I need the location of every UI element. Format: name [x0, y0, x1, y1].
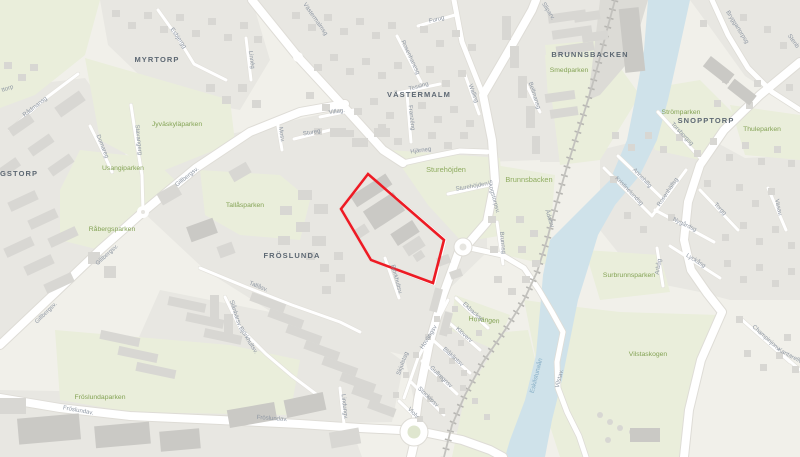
park-label-sturehojden: Sturehöjden: [426, 165, 466, 174]
park-label-jyvaskylaparken: Jyväskyläparken: [152, 121, 202, 128]
park-label-surbrunnsparken: Surbrunnsparken: [603, 272, 655, 279]
district-label-vastermalm: VÄSTERMALM: [387, 90, 451, 99]
district-label-brunnsbacken: BRUNNSBACKEN: [551, 50, 628, 59]
park-label-stromparken: Strömparken: [662, 109, 701, 116]
park-label-brunnsbacken-green: Brunnsbacken: [505, 175, 552, 184]
park-label-froslundaparken: Fröslundaparken: [74, 394, 125, 401]
park-label-tallasparken: Tallåsparken: [226, 201, 264, 209]
district-label-myrtorp: MYRTORP: [134, 55, 179, 64]
map-canvas[interactable]: MYRTORP VÄSTERMALM BRUNNSBACKEN SNOPPTOR…: [0, 0, 800, 457]
park-label-rabergsparken: Råbergsparken: [89, 225, 136, 233]
park-label-smedparken: Smedparken: [550, 67, 589, 74]
park-label-usangiparken: Usangiparken: [102, 165, 144, 172]
park-label-vilstaskogen: Vilstaskogen: [629, 351, 668, 358]
map-svg: MYRTORP VÄSTERMALM BRUNNSBACKEN SNOPPTOR…: [0, 0, 800, 457]
park-label-thuleparken: Thuleparken: [743, 126, 781, 133]
district-label-froslunda: FRÖSLUNDA: [264, 251, 321, 260]
district-label-snopptorp: SNOPPTORP: [678, 116, 735, 125]
district-label-rabergstorp-partial: GSTORP: [0, 169, 38, 178]
